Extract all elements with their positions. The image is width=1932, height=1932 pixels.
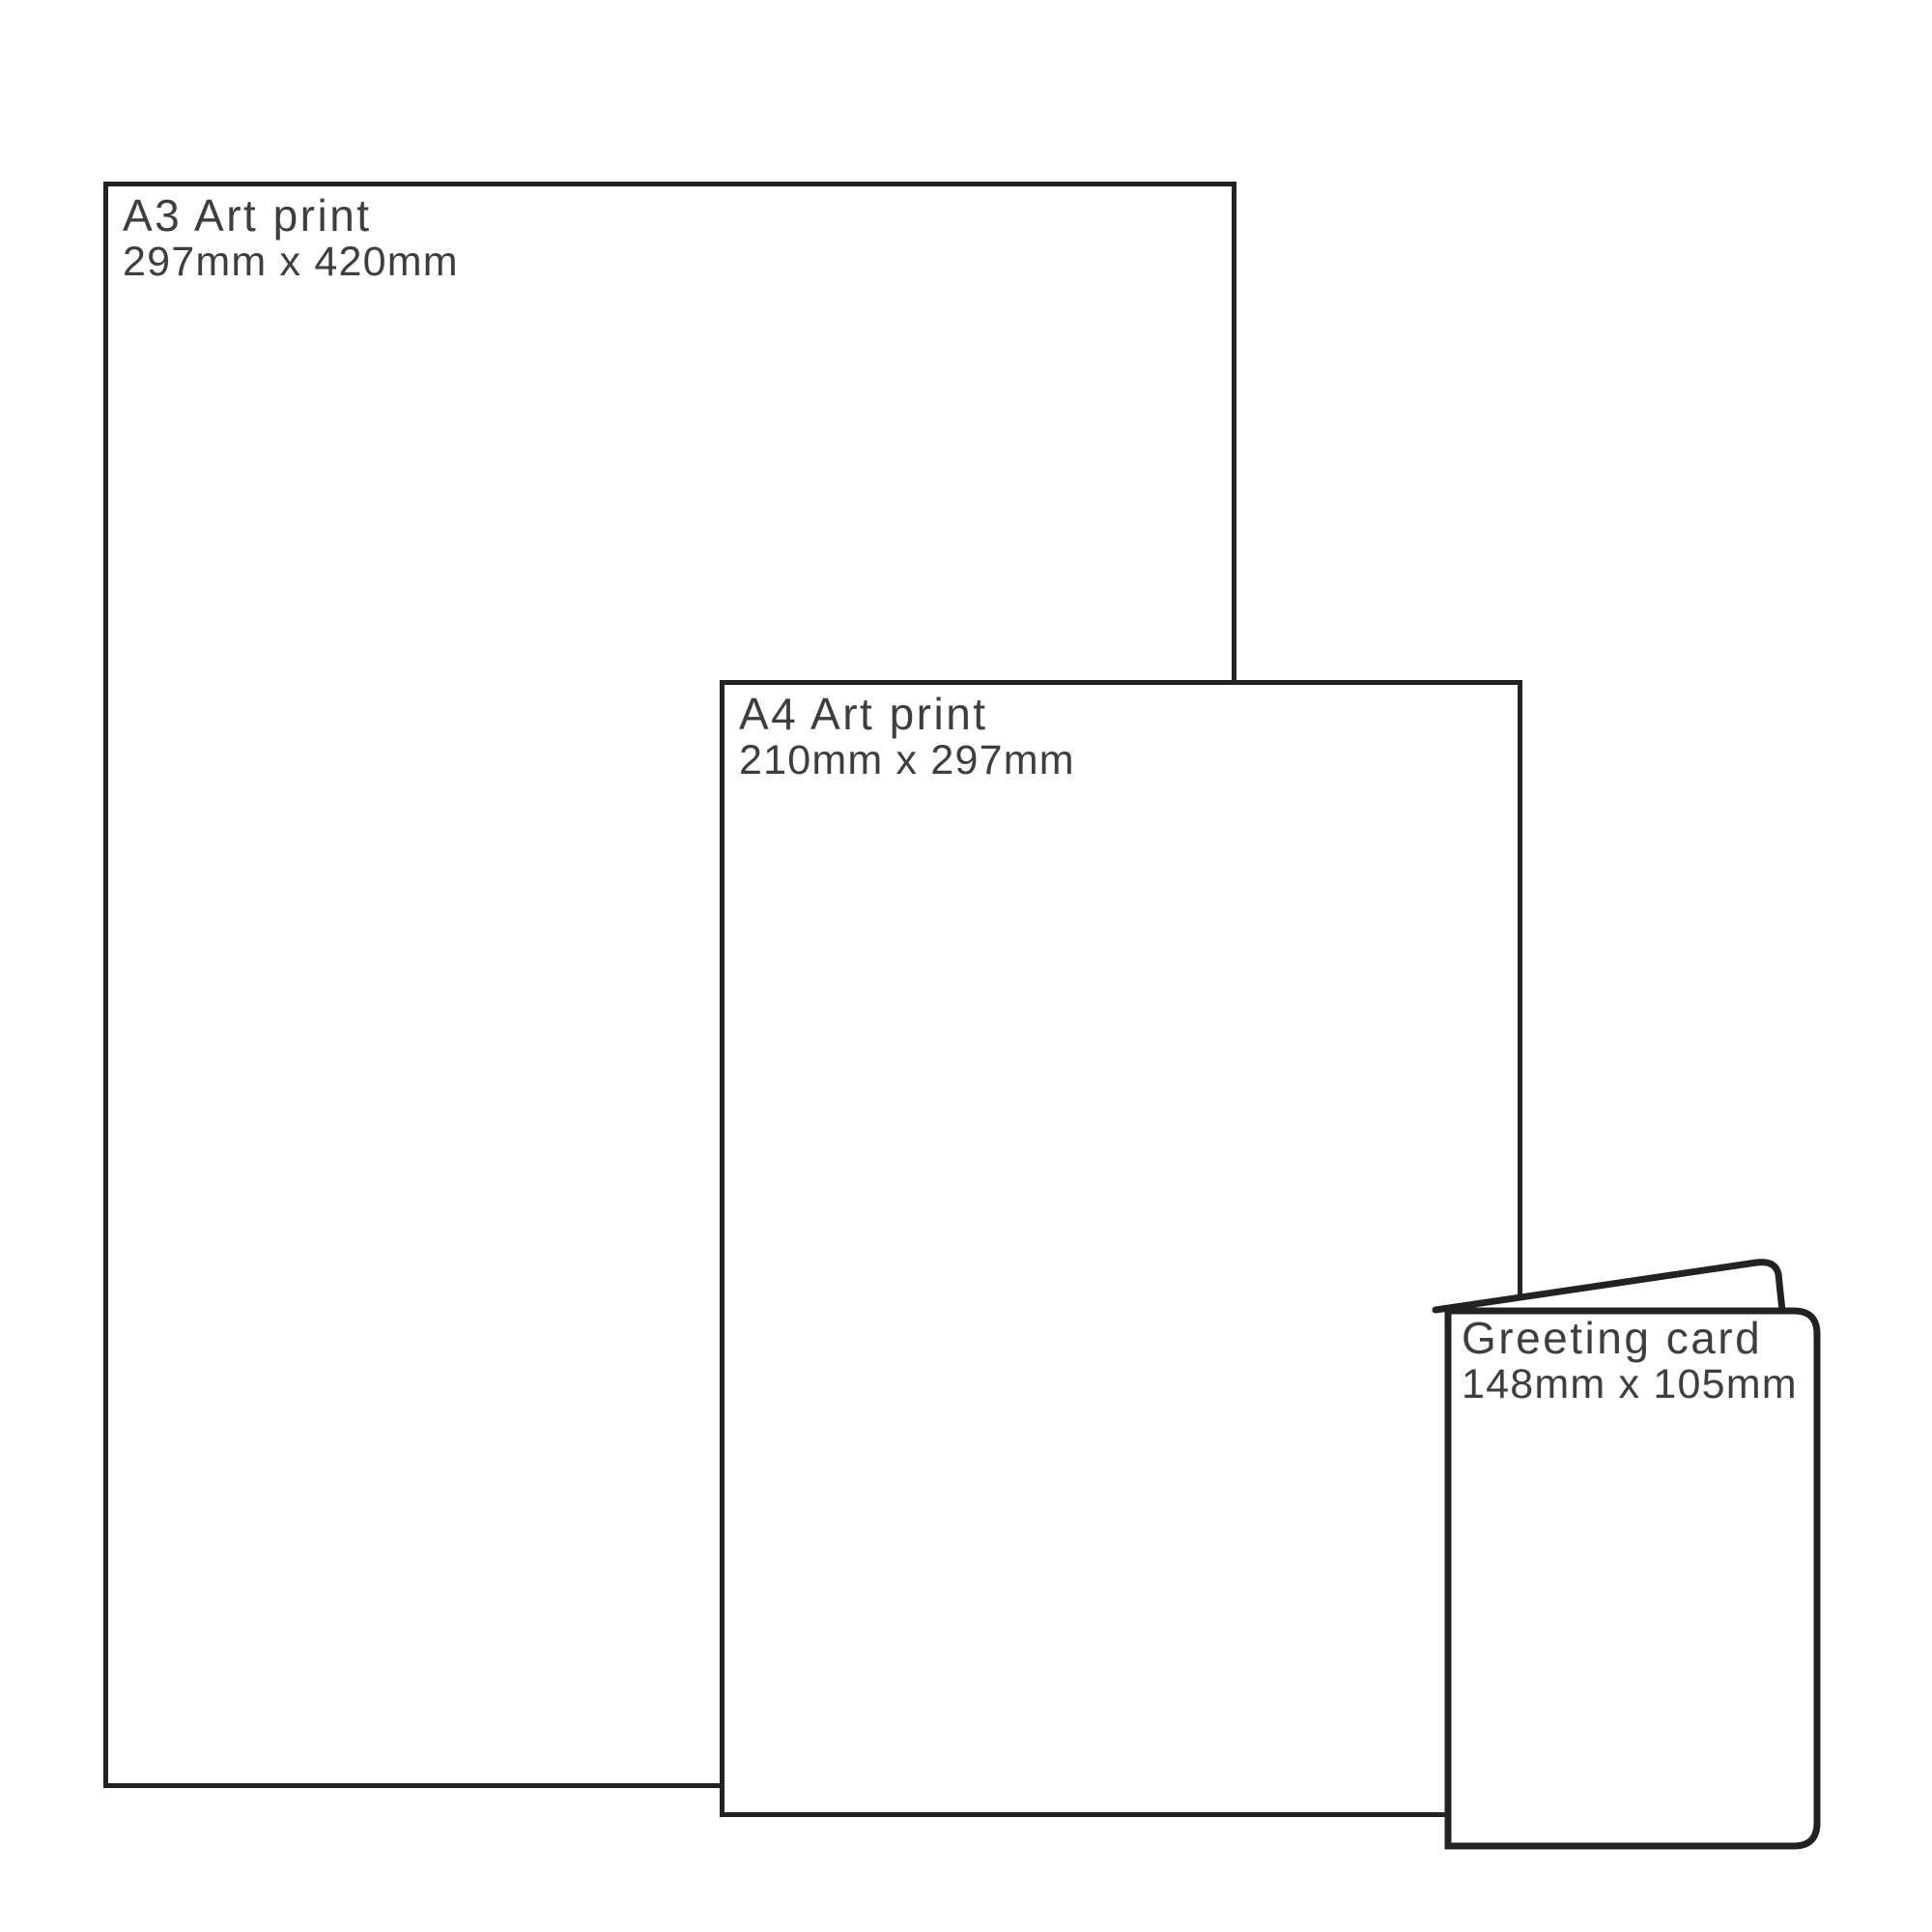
a4-art-print-dimensions: 210mm x 297mm (739, 738, 1075, 783)
a3-art-print-label: A3 Art print 297mm x 420mm (123, 192, 459, 285)
a3-art-print-title: A3 Art print (123, 192, 459, 240)
a4-art-print-title: A4 Art print (739, 691, 1075, 738)
a3-art-print-dimensions: 297mm x 420mm (123, 240, 459, 285)
greeting-card-title: Greeting card (1462, 1315, 1798, 1362)
greeting-card-panel (1352, 1207, 1893, 1884)
greeting-card-dimensions: 148mm x 105mm (1462, 1362, 1798, 1407)
size-comparison-diagram: A3 Art print 297mm x 420mm A4 Art print … (0, 0, 1932, 1932)
greeting-card-label: Greeting card 148mm x 105mm (1462, 1315, 1798, 1407)
a4-art-print-label: A4 Art print 210mm x 297mm (739, 691, 1075, 783)
